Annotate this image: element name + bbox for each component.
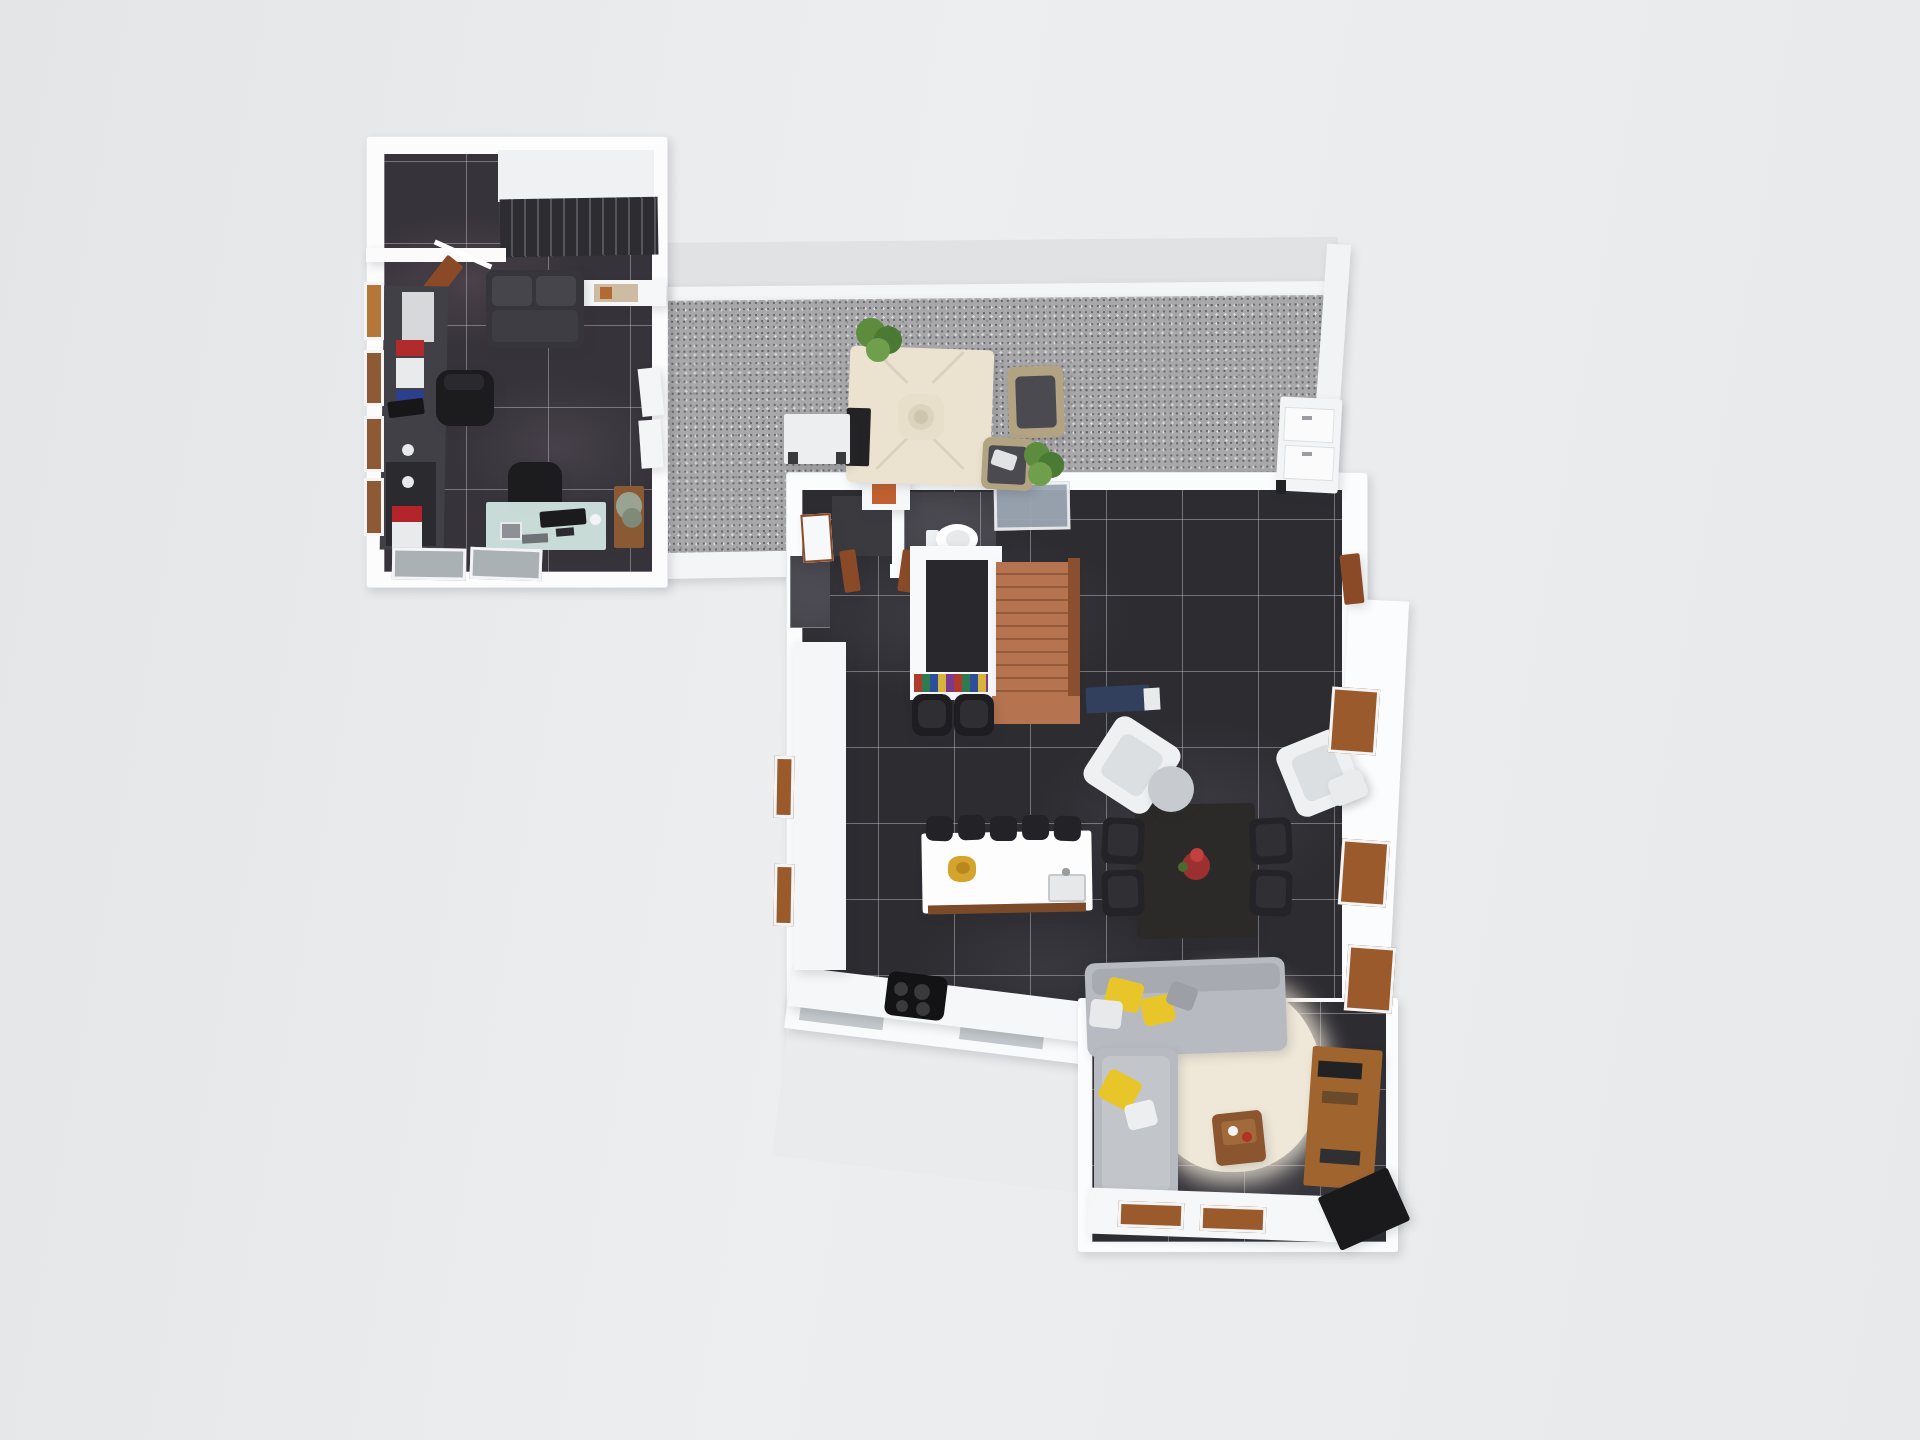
office-sofa-cushion [536,276,576,306]
island-bar-chair [958,815,986,841]
grill-foot [1276,480,1286,494]
wicker-armchair-cushion [1015,375,1057,428]
office-stair-steps [500,197,659,258]
office-window-south [392,547,467,580]
office-chair-back [444,374,484,390]
cooktop-burner [894,982,908,996]
lounge-pouf-ball [1148,766,1194,812]
island-bar-chair [990,816,1017,841]
office-whitebook-stack [392,522,422,550]
floor-plan-render [0,0,1920,1440]
console-item [1322,1091,1359,1105]
cooktop-burner [916,1002,930,1016]
entry-bench-navy [1085,684,1150,713]
stairwell-void [926,560,988,672]
dining-chair-seat [1255,875,1286,908]
office-books-red [396,340,424,356]
terrace-table-leg [788,452,798,464]
grill-handle [1302,416,1312,420]
wc-art-orange [872,484,896,504]
sofa-pillow-white [1089,998,1124,1029]
dining-flowers-leaf [1178,862,1188,872]
dining-flowers [1190,848,1204,862]
terrace-bottom-wall [652,551,794,579]
office-stair-landing [498,150,654,202]
office-mouse [590,514,601,525]
window-sill-south [1200,1205,1267,1233]
office-shelf-plant [622,508,642,528]
office-sofa-cushion [492,276,532,306]
office-cup [402,444,414,456]
office-photo-frame [500,522,522,540]
office-entry-wall [366,248,506,262]
office-books-white [396,358,424,388]
island-faucet [1062,868,1070,876]
window-sill-south [1118,1201,1185,1229]
island-bar-chair [1022,815,1049,840]
cooktop-burner [914,984,930,1000]
console-item [1317,1060,1362,1079]
office-cup [402,476,414,488]
staircase-up [996,562,1070,698]
grill-door [1283,445,1335,482]
island-sink [1048,874,1086,902]
office-window [364,416,384,472]
dining-chair-seat [1107,823,1139,857]
dining-chair-seat [1255,823,1287,857]
office-window [364,478,384,536]
kitchen-counter-left [794,642,846,970]
cooktop-burner [896,1000,908,1012]
office-keyboard [522,533,548,543]
window-sill-west [773,756,794,818]
grill-handle [1302,452,1312,456]
parasol-center-hole [914,410,928,424]
terrace-plant [1028,462,1052,486]
office-window-east [638,419,663,468]
office-sofa-seat [492,310,578,342]
office-window-orange [364,282,384,340]
office-monitor-foot [556,527,575,537]
closet-floor [790,556,830,628]
dining-chair-seat [1107,875,1138,908]
island-gold-decor [956,862,970,874]
office-redbook-stack [392,506,422,522]
window-sill-east [1344,944,1396,1013]
terrace-plant [866,338,890,362]
coffee-table-tray [1221,1118,1257,1145]
window-sill-east [1338,838,1390,907]
office-window [364,350,384,406]
bar-stool-cushion [918,700,946,728]
terrace-table-leg [836,452,846,464]
window-sill-west [773,864,794,926]
window-sill-east [1328,686,1380,755]
coffee-cup [1228,1126,1238,1136]
island-bar-chair [926,816,954,842]
staircase-landing [992,696,1080,724]
office-console-art-accent [600,287,612,299]
office-paper-trays [402,292,434,342]
island-bar-chair [1054,816,1082,842]
entry-bench-white [1143,688,1160,711]
staircase-wood-stringer [1068,558,1080,700]
coffee-decor-red [1242,1132,1252,1142]
console-item [1320,1149,1361,1166]
stairwell-shelf-colorful [914,674,988,692]
grill-door [1283,407,1335,444]
bar-stool-cushion [960,700,988,728]
closet-door [800,513,833,563]
office-window-south [469,547,542,581]
